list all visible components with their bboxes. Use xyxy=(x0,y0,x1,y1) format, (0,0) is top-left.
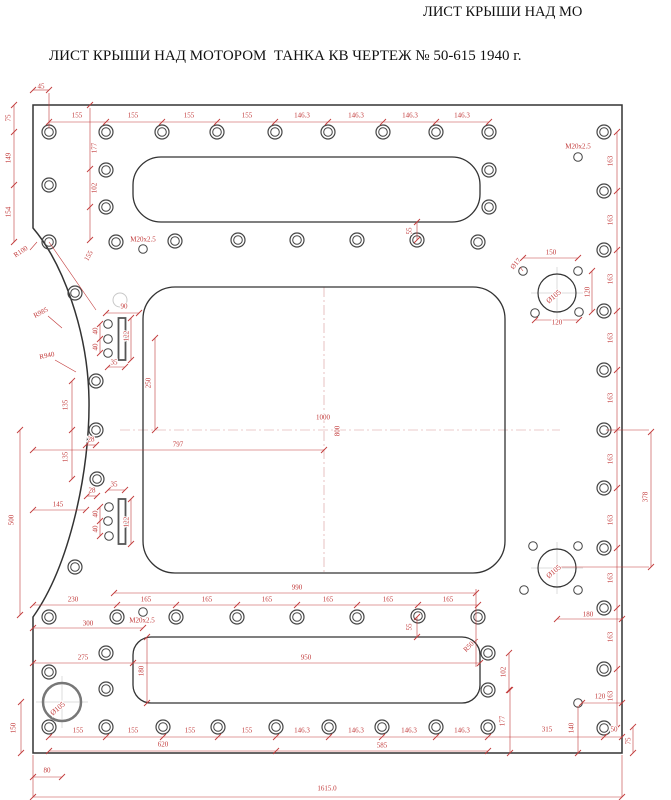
dimension-label: 120 xyxy=(584,286,592,297)
tapped-hole xyxy=(105,532,114,541)
dimension-label: 146.3 xyxy=(348,727,364,735)
dimension-label: 146.3 xyxy=(401,727,417,735)
dimension-label: 40 xyxy=(92,525,100,533)
bolt-hole xyxy=(92,426,101,435)
bolt-hole xyxy=(45,723,54,732)
dimension-label: 950 xyxy=(301,654,312,662)
bolt-hole xyxy=(474,613,483,622)
dimension-label: 120 xyxy=(552,319,563,327)
bolt-hole xyxy=(99,125,113,139)
bolt-hole xyxy=(290,610,304,624)
bolt-hole xyxy=(597,601,611,615)
bolt-hole xyxy=(597,662,611,676)
dimension-label: 80 xyxy=(44,767,52,775)
bolt-hole xyxy=(42,665,56,679)
dimension-label: 150 xyxy=(546,249,557,257)
dimension-label: 155 xyxy=(83,249,95,263)
bolt-hole xyxy=(597,184,611,198)
bolt-hole xyxy=(600,246,609,255)
tapped-hole xyxy=(574,267,583,276)
dimension-label: 155 xyxy=(185,727,196,735)
bolt-hole xyxy=(485,203,494,212)
dimension-label: 165 xyxy=(443,596,454,604)
bolt-hole xyxy=(102,128,111,137)
bolt-hole xyxy=(600,366,609,375)
dimension-label: 150 xyxy=(10,722,18,733)
bolt-hole xyxy=(156,720,170,734)
bolt-hole xyxy=(597,125,611,139)
tapped-hole xyxy=(104,335,113,344)
bolt-hole xyxy=(290,233,304,247)
dimension-label: 90 xyxy=(121,303,129,311)
bolt-hole xyxy=(45,181,54,190)
tapped-hole xyxy=(139,245,148,254)
dimension-label: 146.3 xyxy=(454,727,470,735)
bolt-hole xyxy=(211,720,225,734)
dimension-label: 585 xyxy=(377,742,388,750)
dimension-label: 500 xyxy=(8,514,16,525)
dimension-label: 163 xyxy=(607,453,615,464)
dimension-label: R100 xyxy=(12,244,29,259)
bolt-hole xyxy=(325,723,334,732)
dimension-label: 620 xyxy=(158,741,169,749)
dimension-label: 145 xyxy=(53,501,64,509)
bolt-hole xyxy=(293,236,302,245)
dimension-line xyxy=(48,316,62,328)
bolt-hole xyxy=(71,289,80,298)
dimension-label: 163 xyxy=(607,572,615,583)
bolt-hole xyxy=(432,723,441,732)
bolt-hole xyxy=(45,613,54,622)
bolt-hole xyxy=(42,610,56,624)
dimension-label: R940 xyxy=(39,350,56,361)
bolt-hole xyxy=(45,128,54,137)
dimension-label: 155 xyxy=(128,112,139,120)
bolt-hole xyxy=(484,686,493,695)
dimension-label: 165 xyxy=(141,596,152,604)
dimension-label: 800 xyxy=(334,425,342,436)
bolt-hole xyxy=(42,178,56,192)
bolt-hole xyxy=(482,125,496,139)
bolt-hole xyxy=(112,238,121,247)
bolt-hole xyxy=(169,610,183,624)
bolt-hole xyxy=(597,721,611,735)
bolt-hole xyxy=(113,613,122,622)
dimension-label: 135 xyxy=(62,399,70,410)
dimension-label: 120 xyxy=(595,693,606,701)
bolt-hole xyxy=(99,720,113,734)
bolt-hole xyxy=(597,541,611,555)
dimension-label: M20x2.5 xyxy=(565,143,591,151)
engineering-drawing: 4575155155155155146.3146.3146.3146.31491… xyxy=(0,0,671,800)
bolt-hole xyxy=(429,125,443,139)
dimension-label: 315 xyxy=(542,726,553,734)
bolt-hole xyxy=(271,128,280,137)
dimension-label: 177 xyxy=(499,715,507,726)
bolt-hole xyxy=(600,484,609,493)
bolt-hole xyxy=(68,286,82,300)
bolt-hole xyxy=(269,720,283,734)
dimension-label: 155 xyxy=(72,112,83,120)
dimension-label: 155 xyxy=(184,112,195,120)
bolt-hole xyxy=(432,128,441,137)
bolt-hole xyxy=(102,723,111,732)
bolt-hole xyxy=(71,563,80,572)
bolt-hole xyxy=(350,233,364,247)
bolt-hole xyxy=(210,125,224,139)
dimension-label: 146.3 xyxy=(348,112,364,120)
bolt-hole xyxy=(350,610,364,624)
bolt-hole xyxy=(293,613,302,622)
dimension-label: 154 xyxy=(5,206,13,217)
dimension-label: 1000 xyxy=(316,414,331,422)
dimension-label: 135 xyxy=(62,451,70,462)
bolt-hole xyxy=(321,125,335,139)
dimension-label: 50 xyxy=(611,726,619,734)
dimension-label: 28 xyxy=(89,487,97,495)
bolt-hole xyxy=(102,649,111,658)
tapped-hole xyxy=(139,608,148,617)
dimension-label: 102 xyxy=(91,182,99,193)
bolt-hole xyxy=(268,125,282,139)
bolt-hole xyxy=(102,203,111,212)
bolt-hole xyxy=(484,723,493,732)
dimension-label: 165 xyxy=(262,596,273,604)
dimension-label: 155 xyxy=(128,727,139,735)
dimension-label: 177 xyxy=(91,142,99,153)
dimension-label: 378 xyxy=(642,491,650,502)
dimension-label: 40 xyxy=(92,327,100,335)
bolt-hole xyxy=(172,613,181,622)
dimension-label: R985 xyxy=(32,305,50,319)
bolt-hole xyxy=(233,613,242,622)
dimension-label: 35 xyxy=(111,359,119,367)
dimension-label: 990 xyxy=(292,584,303,592)
bolt-hole xyxy=(482,200,496,214)
tapped-hole xyxy=(574,153,583,162)
dimension-label: 140 xyxy=(568,722,576,733)
dimension-line xyxy=(55,360,76,372)
tapped-hole xyxy=(574,542,583,551)
dimension-label: 35 xyxy=(111,481,119,489)
opening-cutout xyxy=(133,157,480,222)
tapped-hole xyxy=(104,517,113,526)
bolt-hole xyxy=(102,685,111,694)
bolt-hole xyxy=(213,128,222,137)
dimension-line xyxy=(30,242,37,250)
bolt-hole xyxy=(379,128,388,137)
bolt-hole xyxy=(597,363,611,377)
bolt-hole xyxy=(42,720,56,734)
dimension-label: 75 xyxy=(5,114,13,122)
dimension-label: 275 xyxy=(78,654,89,662)
dimension-label: 163 xyxy=(607,392,615,403)
dimension-label: 55 xyxy=(406,227,414,235)
bolt-hole xyxy=(485,166,494,175)
dimension-label: 1615.0 xyxy=(317,785,337,793)
dimension-label: Ø105 xyxy=(544,562,563,580)
dimension-label: 122 xyxy=(123,330,131,341)
dimension-label: 180 xyxy=(583,611,594,619)
tapped-hole xyxy=(104,349,113,358)
tapped-hole xyxy=(574,586,583,595)
tapped-hole xyxy=(520,586,529,595)
dimension-label: 230 xyxy=(68,596,79,604)
bolt-hole xyxy=(90,472,104,486)
tapped-hole xyxy=(575,308,584,317)
tapped-hole xyxy=(105,503,114,512)
bolt-hole xyxy=(324,128,333,137)
bolt-hole xyxy=(158,128,167,137)
dimension-label: 149 xyxy=(5,152,13,163)
bolt-hole xyxy=(159,723,168,732)
dimension-label: 75 xyxy=(625,737,633,745)
dimension-label: 155 xyxy=(242,112,253,120)
dimension-label: 45 xyxy=(38,83,46,91)
bolt-hole xyxy=(600,544,609,553)
bolt-hole xyxy=(110,610,124,624)
opening-cutout xyxy=(133,637,480,703)
bolt-hole xyxy=(597,481,611,495)
bolt-hole xyxy=(600,665,609,674)
bolt-hole xyxy=(168,234,182,248)
drawing-sheet: ЛИСТ КРЫШИ НАД МО ЛИСТ КРЫШИ НАД МОТОРОМ… xyxy=(0,0,671,800)
bolt-hole xyxy=(92,377,101,386)
bolt-hole xyxy=(45,668,54,677)
dimension-label: 155 xyxy=(242,727,253,735)
bolt-hole xyxy=(322,720,336,734)
bolt-hole xyxy=(102,166,111,175)
bolt-hole xyxy=(99,682,113,696)
dimension-label: 300 xyxy=(83,620,94,628)
bolt-hole xyxy=(481,683,495,697)
dimension-label: 163 xyxy=(607,690,615,701)
tapped-hole xyxy=(529,542,538,551)
dimension-label: 163 xyxy=(607,332,615,343)
dimension-label: 165 xyxy=(383,596,394,604)
dimension-label: 163 xyxy=(607,273,615,284)
bolt-hole xyxy=(471,235,485,249)
bolt-hole xyxy=(234,236,243,245)
bolt-hole xyxy=(89,374,103,388)
plate-outline xyxy=(33,105,622,753)
dimension-label: 28 xyxy=(88,436,96,444)
bolt-hole xyxy=(600,724,609,733)
bolt-hole xyxy=(600,128,609,137)
dimension-label: 165 xyxy=(202,596,213,604)
dimension-label: M20x2.5 xyxy=(130,236,156,244)
bolt-hole xyxy=(68,560,82,574)
bolt-hole xyxy=(99,200,113,214)
dimension-label: M20x2.5 xyxy=(129,617,155,625)
bolt-hole xyxy=(597,243,611,257)
bolt-hole xyxy=(600,187,609,196)
dimension-label: 163 xyxy=(607,155,615,166)
dimension-label: 146.3 xyxy=(294,727,310,735)
dimension-label: 165 xyxy=(323,596,334,604)
dimension-label: 146.3 xyxy=(402,112,418,120)
bolt-hole xyxy=(378,723,387,732)
dimension-label: 163 xyxy=(607,514,615,525)
dimension-label: 163 xyxy=(607,631,615,642)
bolt-hole xyxy=(231,233,245,247)
bolt-hole xyxy=(93,475,102,484)
dimension-label: 102 xyxy=(500,666,508,677)
dimension-label: 122 xyxy=(123,516,131,527)
bolt-hole xyxy=(353,613,362,622)
bolt-hole xyxy=(353,236,362,245)
dimension-label: 55 xyxy=(406,623,414,631)
bolt-hole xyxy=(109,235,123,249)
bolt-hole xyxy=(99,163,113,177)
bolt-hole xyxy=(481,720,495,734)
dimension-label: 250 xyxy=(145,377,153,388)
bolt-hole xyxy=(481,646,495,660)
bolt-hole xyxy=(272,723,281,732)
dimension-label: Ø105 xyxy=(544,287,563,305)
dimension-label: 40 xyxy=(92,343,100,351)
dimension-line xyxy=(520,267,523,271)
bolt-hole xyxy=(600,307,609,316)
dimension-label: 180 xyxy=(138,665,146,676)
dimension-label: Ø17 xyxy=(509,256,523,271)
bolt-hole xyxy=(474,238,483,247)
bolt-hole xyxy=(429,720,443,734)
tapped-hole xyxy=(104,320,113,329)
bolt-hole xyxy=(214,723,223,732)
bolt-hole xyxy=(155,125,169,139)
dimension-label: 40 xyxy=(92,510,100,518)
bolt-hole xyxy=(171,237,180,246)
bolt-hole xyxy=(485,128,494,137)
dimension-label: 146.3 xyxy=(294,112,310,120)
dimension-label: 797 xyxy=(173,441,184,449)
bolt-hole xyxy=(471,610,485,624)
tapped-hole xyxy=(531,309,540,318)
dimension-label: 163 xyxy=(607,214,615,225)
bolt-hole xyxy=(600,604,609,613)
bolt-hole xyxy=(99,646,113,660)
dimension-label: 146.3 xyxy=(454,112,470,120)
bolt-hole xyxy=(482,163,496,177)
bolt-hole xyxy=(597,304,611,318)
bolt-hole xyxy=(230,610,244,624)
bolt-hole xyxy=(484,649,493,658)
dimension-label: 155 xyxy=(73,727,84,735)
bolt-hole xyxy=(376,125,390,139)
bolt-hole xyxy=(375,720,389,734)
